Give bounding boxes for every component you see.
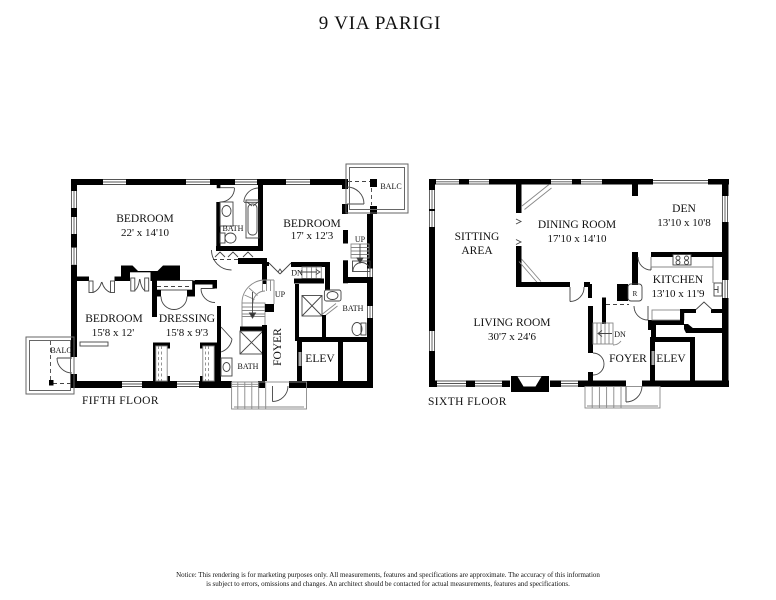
svg-text:13'10 x 10'8: 13'10 x 10'8 [657,217,711,229]
svg-text:17'10 x 14'10: 17'10 x 14'10 [548,233,607,245]
svg-text:13'10 x 11'9: 13'10 x 11'9 [651,288,705,300]
svg-text:DN: DN [291,269,303,278]
svg-text:15'8 x 9'3: 15'8 x 9'3 [166,327,209,339]
svg-text:30'7 x 24'6: 30'7 x 24'6 [488,331,536,343]
svg-text:UP: UP [275,290,286,299]
svg-text:FOYER: FOYER [609,353,647,365]
svg-text:SIXTH FLOOR: SIXTH FLOOR [428,396,507,408]
svg-text:DN: DN [614,330,626,339]
svg-text:is subject to errors, omission: is subject to errors, omissions and chan… [206,580,570,588]
svg-text:AREA: AREA [461,245,493,257]
svg-text:BALC: BALC [50,346,71,355]
svg-text:R: R [633,290,638,298]
svg-text:DEN: DEN [672,203,696,215]
svg-text:DINING ROOM: DINING ROOM [538,219,616,231]
svg-text:BATH: BATH [343,304,364,313]
svg-text:DRESSING: DRESSING [159,313,215,325]
svg-text:BEDROOM: BEDROOM [85,313,143,325]
svg-text:BALC: BALC [380,182,401,191]
svg-text:LIVING ROOM: LIVING ROOM [474,317,551,329]
svg-text:15'8 x 12': 15'8 x 12' [92,327,134,339]
svg-text:ELEV: ELEV [305,353,335,365]
svg-text:22' x 14'10: 22' x 14'10 [121,227,169,239]
svg-text:BATH: BATH [223,224,244,233]
svg-text:BEDROOM: BEDROOM [283,218,341,230]
svg-text:BATH: BATH [238,362,259,371]
svg-text:17' x 12'3: 17' x 12'3 [291,230,334,242]
svg-text:FIFTH FLOOR: FIFTH FLOOR [82,395,159,407]
svg-text:ELEV: ELEV [656,353,686,365]
svg-text:KITCHEN: KITCHEN [653,274,704,286]
svg-text:FOYER: FOYER [272,328,284,366]
svg-text:Notice: This rendering is for: Notice: This rendering is for marketing … [176,571,600,579]
svg-text:BEDROOM: BEDROOM [116,213,174,225]
svg-text:9 VIA PARIGI: 9 VIA PARIGI [319,13,442,34]
svg-text:UP: UP [355,235,366,244]
svg-text:SITTING: SITTING [455,231,500,243]
